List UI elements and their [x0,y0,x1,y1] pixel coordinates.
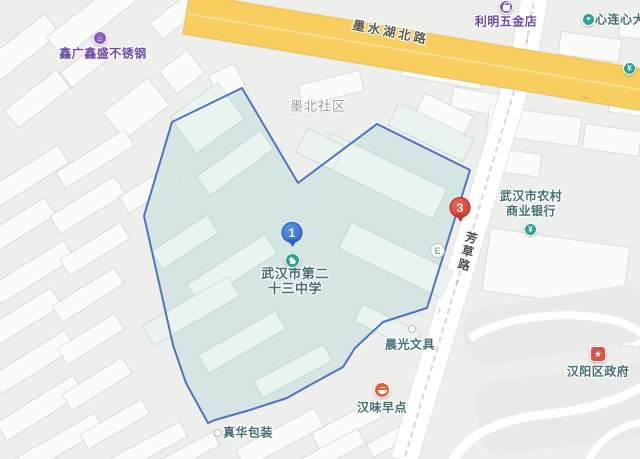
poi-icon-atm-yuan[interactable]: ¥ [623,62,636,75]
poi-label-bank[interactable]: 武汉市农村 商业银行 [500,189,563,219]
building [103,78,168,139]
school-name-line1: 武汉市第二 [261,266,329,281]
poi-dot-stationery[interactable] [408,325,416,333]
school-building [340,223,453,297]
poi-label-hardware-store[interactable]: 利明五金店 [475,13,538,30]
building [61,223,130,275]
building [0,14,59,79]
building [56,130,133,188]
poi-icon-xinlianxin[interactable]: ♥ [582,13,595,26]
marker-3[interactable]: 3 [450,197,471,218]
poi-label-xinlianxin[interactable]: 心连心大 [595,11,640,28]
building [5,70,70,127]
school-building [152,216,218,269]
poi-label-breakfast[interactable]: 汉味早点 [357,399,407,416]
poi-label-stationery[interactable]: 晨光文具 [385,336,435,353]
building [583,124,640,156]
building [0,241,74,303]
building [50,177,124,234]
building [120,165,180,212]
poi-icon-government[interactable]: ★ [590,346,606,362]
poi-icon-breakfast[interactable] [374,382,390,398]
map-canvas[interactable]: → ↓ ↑ ↑ 墨水湖北路 芳草路 墨北社区 ⌂ 鑫广鑫盛不锈钢 利明五金店 ♥… [0,0,640,459]
school-building [199,311,285,372]
poi-icon-bank-yuan[interactable]: ¥ [524,223,537,236]
poi-label-government[interactable]: 汉阳区政府 [567,363,630,380]
bank-name-line1: 武汉市农村 [500,189,563,204]
building [0,198,55,252]
shopping-bag-icon [503,5,510,11]
building [160,51,204,94]
poi-icon-hardware-store[interactable] [499,0,513,14]
school-building [254,345,331,398]
entrance-icon[interactable]: E [430,243,445,258]
poi-label-school[interactable]: 武汉市第二 十三中学 [261,266,329,296]
poi-label-packaging[interactable]: 真华包装 [223,424,273,441]
graduation-cap-icon [288,257,297,264]
traffic-arrow-right: → [579,90,590,101]
school-name-line2: 十三中学 [261,281,329,296]
area-label-mobei-community[interactable]: 墨北社区 [290,96,346,115]
marker-1[interactable]: 1 [282,222,303,243]
poi-dot-packaging[interactable] [214,429,222,437]
bowl-icon [378,387,387,394]
poi-icon-steel-shop[interactable]: ⌂ [93,31,107,45]
bank-name-line2: 商业银行 [500,204,563,219]
building [0,146,68,211]
poi-icon-school[interactable] [285,253,300,268]
poi-label-steel-shop[interactable]: 鑫广鑫盛不锈钢 [59,45,147,62]
